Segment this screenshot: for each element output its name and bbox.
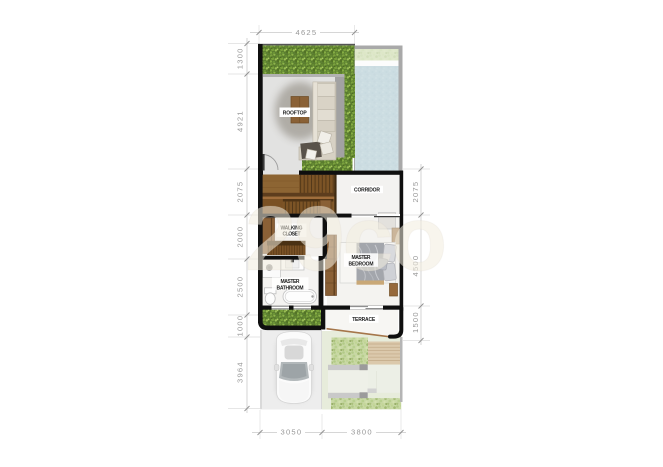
svg-text:MASTER: MASTER (352, 255, 371, 261)
svg-text:ROOFTOP: ROOFTOP (283, 110, 308, 116)
svg-text:1000: 1000 (236, 316, 245, 337)
svg-text:2500: 2500 (236, 277, 245, 298)
svg-text:3800: 3800 (351, 428, 372, 437)
svg-text:29co: 29co (245, 188, 445, 290)
svg-text:4921: 4921 (236, 111, 245, 132)
svg-text:TERRACE: TERRACE (352, 317, 376, 323)
svg-text:CORRIDOR: CORRIDOR (354, 187, 380, 193)
svg-text:3964: 3964 (236, 362, 245, 383)
svg-text:1300: 1300 (236, 48, 245, 69)
svg-text:4625: 4625 (296, 28, 317, 37)
svg-text:BATHROOM: BATHROOM (277, 285, 304, 291)
svg-text:2075: 2075 (236, 182, 245, 203)
svg-text:MASTER: MASTER (281, 279, 300, 285)
svg-text:2000: 2000 (236, 227, 245, 248)
svg-text:3050: 3050 (281, 428, 302, 437)
svg-text:1500: 1500 (411, 312, 420, 333)
svg-text:BEDROOM: BEDROOM (349, 261, 374, 267)
